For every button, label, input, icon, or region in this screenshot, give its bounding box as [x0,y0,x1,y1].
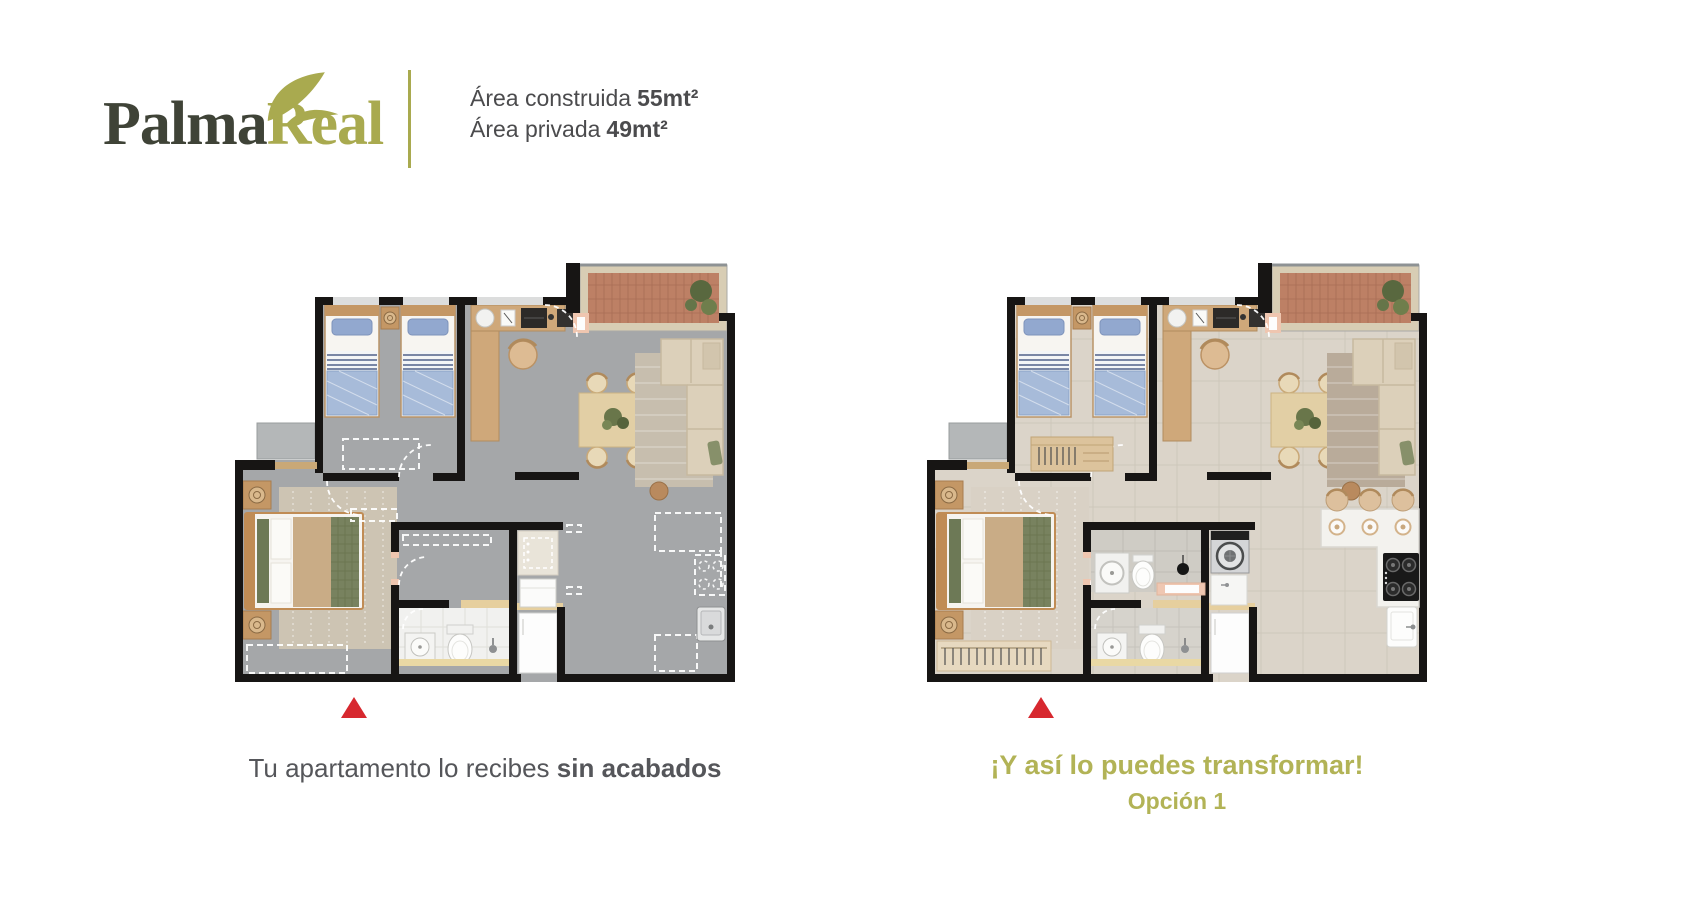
area-construida-line: Área construida55mt² [470,83,698,114]
caption-unfinished: Tu apartamento lo recibes sin acabados [225,753,745,784]
washing-machine [1211,531,1249,573]
kids-closet [1031,437,1113,471]
red-triangle-marker [1028,697,1054,718]
palma-real-floorplan-sheet: PalmaReal Área construida55mt² Área priv… [0,0,1701,900]
area-privada-line: Área privada49mt² [470,114,698,145]
place-settings [1330,520,1411,535]
caption-transform: ¡Y así lo puedes transformar! [917,750,1437,781]
stove [1383,553,1419,601]
palm-leaf-icon [261,68,345,132]
toilet-icon [1132,555,1154,589]
caption-option: Opción 1 [917,788,1437,815]
bathroom-upper [1091,530,1205,595]
header-divider [408,70,411,168]
kitchen-sink [1387,607,1417,647]
steel-sink [697,607,725,641]
laundry-sink [1211,575,1247,605]
master-wardrobe [937,641,1051,671]
area-info: Área construida55mt² Área privada49mt² [470,83,698,145]
floor-plan-option1 [927,255,1427,682]
vanity-sink-icon [1095,553,1129,593]
floor-plan-unfinished [235,255,735,682]
dishwasher-front [520,579,556,607]
bar-stools [1326,489,1414,511]
palma-real-logo: PalmaReal [103,84,383,170]
logo-text-primary: Palma [103,90,267,158]
red-triangle-marker [341,697,367,718]
